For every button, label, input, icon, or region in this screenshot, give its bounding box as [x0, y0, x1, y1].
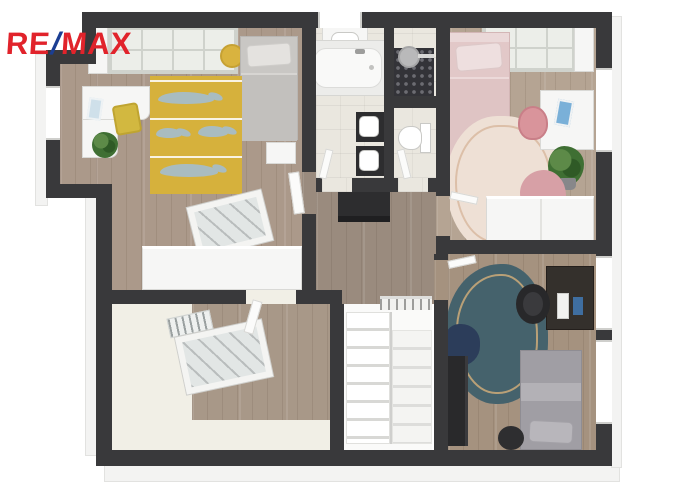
window-pink-right	[596, 68, 612, 152]
sink-unit-1	[356, 112, 386, 142]
fox-motif	[198, 126, 228, 137]
pink-chair	[518, 106, 548, 140]
blue-pouf	[498, 426, 524, 450]
kids-fox-rug	[150, 76, 242, 194]
blue-desk	[546, 266, 594, 330]
wall-bottom	[96, 450, 612, 466]
window-blue-right-1	[596, 256, 612, 330]
wall-alcove-step	[46, 184, 112, 198]
blue-desk-monitor	[557, 293, 569, 319]
stairs-lower-flight	[392, 330, 432, 444]
sink-basin-2	[359, 150, 379, 171]
rain-shower-head	[398, 46, 420, 68]
wall-pink-south	[436, 240, 596, 254]
shower-arm	[418, 54, 434, 58]
building-outer-face-bottom	[104, 464, 620, 482]
window-bath-top	[318, 12, 362, 28]
bathtub-drain	[369, 65, 374, 70]
blue-desk-books	[573, 297, 583, 315]
hall-black-dresser	[338, 190, 390, 222]
window-alcove-left	[46, 86, 60, 140]
door-gap-pink	[436, 196, 450, 236]
blue-office-chair	[516, 284, 550, 324]
kids-nightstand	[266, 142, 296, 164]
sink-unit-2	[356, 146, 386, 176]
fox-motif	[158, 92, 214, 104]
stairs-divider	[390, 312, 392, 444]
wall-children-east	[302, 12, 316, 292]
blue-bed	[520, 350, 582, 450]
wall-bath-divider-horizontal	[384, 96, 436, 108]
pink-bed-headboard	[449, 33, 509, 42]
wall-attic-north	[96, 290, 342, 304]
door-gap-blue	[434, 260, 448, 300]
kids-bed-pillow	[246, 42, 291, 67]
remax-logo: RE/MAX	[5, 26, 133, 62]
kids-bed	[240, 36, 298, 140]
pink-wardrobe-split	[540, 199, 542, 243]
pink-cabinet	[574, 26, 594, 72]
bathtub-faucet	[355, 49, 365, 54]
kids-yellow-chair	[112, 102, 143, 136]
remax-logo-max: MAX	[60, 26, 133, 61]
pink-wardrobe	[486, 196, 594, 242]
wall-stairs-west	[330, 304, 344, 450]
blue-bed-pillow	[528, 420, 573, 444]
stairs-railing	[380, 296, 432, 310]
wall-bath-pink-divider	[436, 12, 450, 192]
remax-logo-re: RE	[5, 26, 52, 61]
fox-motif	[160, 164, 218, 177]
pink-bed-pillow	[455, 42, 503, 72]
fox-motif	[156, 128, 182, 138]
stairs-upper-flight	[346, 312, 390, 444]
blue-bed-fold	[521, 383, 581, 401]
bathtub	[306, 40, 390, 96]
door-gap-bathroom	[322, 178, 352, 192]
floor-plan-canvas: RE/MAX	[0, 0, 684, 484]
blue-office-chair-seat	[523, 292, 543, 316]
door-gap-wc	[398, 178, 428, 192]
kids-bed-blanket	[241, 73, 297, 141]
toilet-bowl	[398, 126, 422, 150]
window-blue-right-2	[596, 340, 612, 424]
building-outer-face-right	[611, 16, 622, 468]
wall-left-lower	[96, 184, 112, 450]
sink-basin-1	[359, 116, 379, 137]
kids-low-sideboard	[142, 246, 302, 290]
